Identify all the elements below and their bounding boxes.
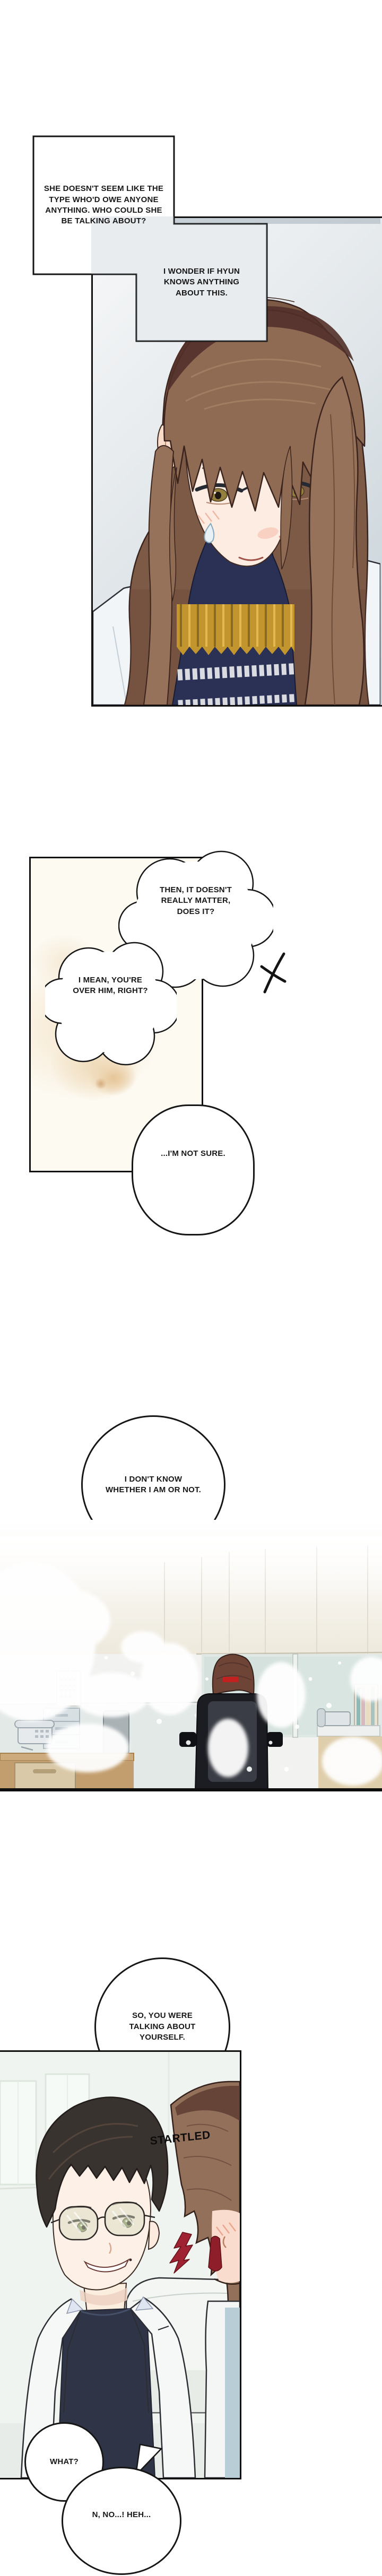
bubble-dont-know-text: I DON'T KNOW WHETHER I AM OR NOT. — [103, 1474, 204, 1496]
bubble-mean: I MEAN, YOU'RE OVER HIM, RIGHT? — [68, 975, 153, 997]
bubble-mean-text: I MEAN, YOU'RE OVER HIM, RIGHT? — [73, 976, 148, 995]
bubble-no-text: N, NO...! HEH... — [90, 2510, 153, 2520]
narration-box-2: I WONDER IF HYUN KNOWS ANYTHING ABOUT TH… — [136, 224, 267, 341]
doctor-illustration — [0, 2052, 240, 2478]
comic-page: SHE DOESN'T SEEM LIKE THE TYPE WHO'D OWE… — [0, 0, 382, 2576]
bubble-then: THEN, IT DOESN'T REALLY MATTER, DOES IT? — [153, 885, 239, 917]
panel-office — [0, 1520, 382, 1791]
bubble-not-sure-text: ...I'M NOT SURE. — [156, 1148, 230, 1159]
x-doodle-mark — [258, 951, 288, 995]
office-illustration — [0, 1520, 382, 1791]
bubble-then-text: THEN, IT DOESN'T REALLY MATTER, DOES IT? — [160, 885, 232, 916]
bubble-not-sure: ...I'M NOT SURE. — [132, 1104, 255, 1235]
panel-doctor: STARTLED — [0, 2050, 241, 2479]
bubble-so-text: SO, YOU WERE TALKING ABOUT YOURSELF. — [115, 2011, 210, 2043]
bubble-what-text: WHAT? — [50, 2457, 79, 2467]
narration-box-1-text: SHE DOESN'T SEEM LIKE THE TYPE WHO'D OWE… — [41, 184, 167, 227]
cloud-bubble-mean — [45, 936, 177, 1067]
narration-box-2-text: I WONDER IF HYUN KNOWS ANYTHING ABOUT TH… — [150, 266, 253, 299]
bubble-no: N, NO...! HEH... — [62, 2467, 181, 2575]
